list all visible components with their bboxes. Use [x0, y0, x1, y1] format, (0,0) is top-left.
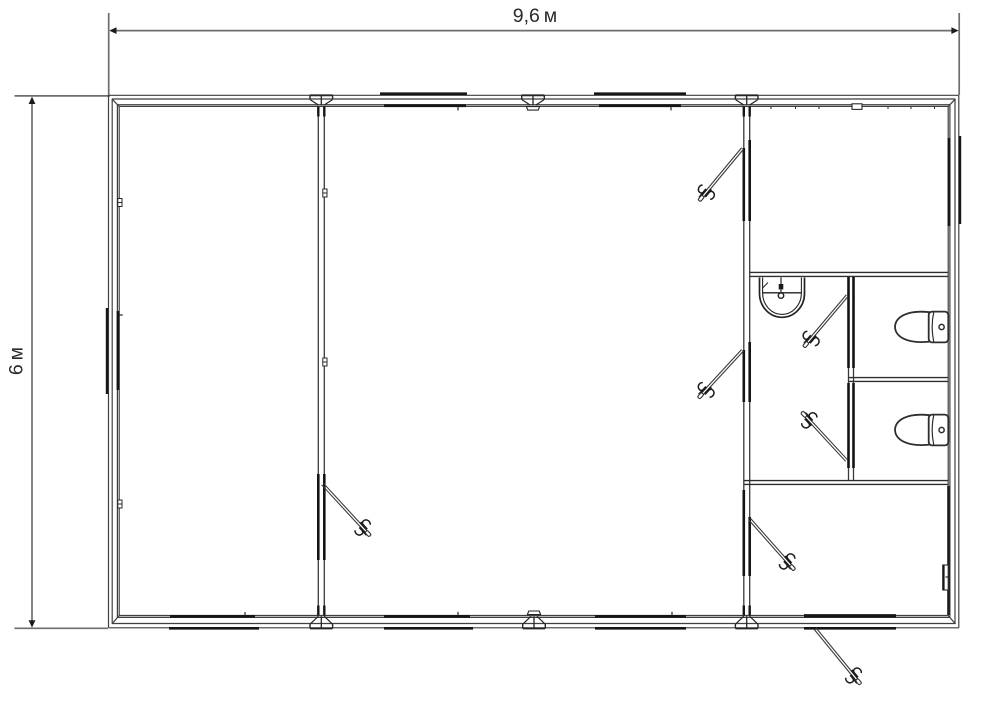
svg-text:9,6 м: 9,6 м [513, 5, 557, 27]
svg-text:6 м: 6 м [6, 347, 28, 375]
